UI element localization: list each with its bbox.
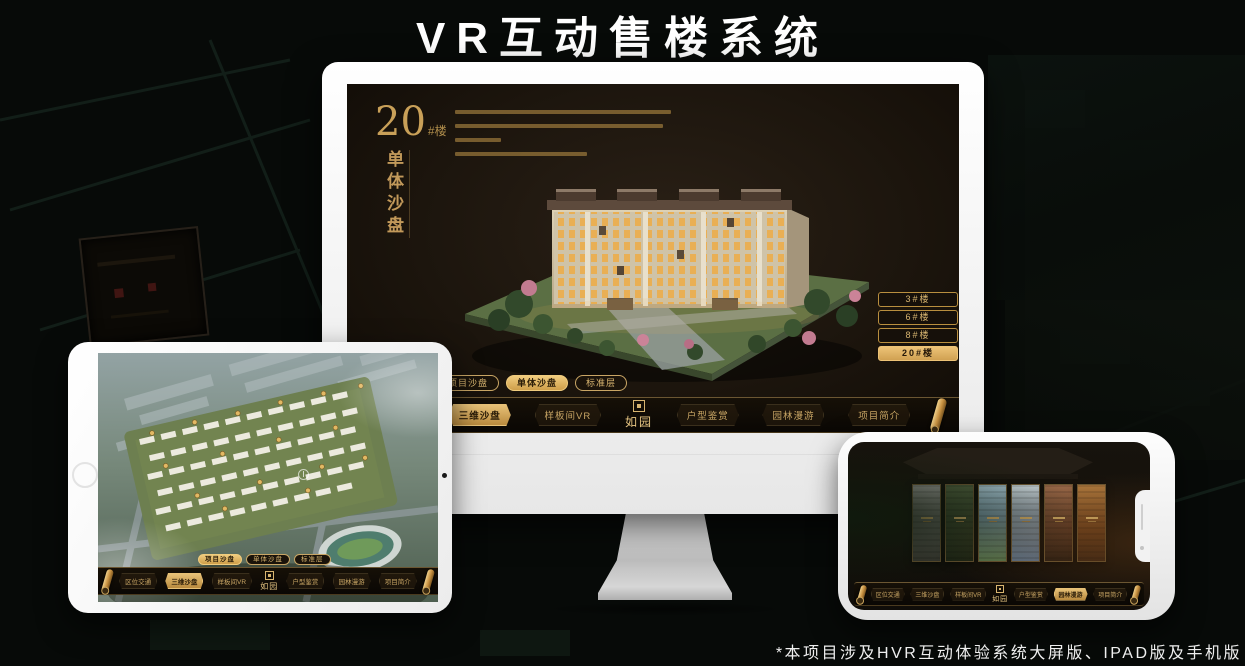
scroll-icon[interactable]: [101, 569, 114, 594]
floor-button-6[interactable]: 6#楼: [878, 310, 958, 325]
poster: VR互动售楼系统 20#楼 单体沙盘: [0, 0, 1245, 666]
menu-item-showroom-vr[interactable]: 样板间VR: [212, 573, 253, 589]
menu-item-floorplan[interactable]: 户型鉴赏: [677, 404, 739, 426]
menu-item-showroom-vr[interactable]: 样板间VR: [535, 404, 602, 426]
background-photo: [988, 55, 1245, 300]
camera-icon: [1140, 546, 1144, 550]
tablet-camera-ring: [72, 462, 98, 488]
scroll-icon[interactable]: [1131, 585, 1142, 604]
phone-navbar: 区位交通 三维沙盘 样板间VR 如园 户型鉴赏 园林漫游 项目简介: [854, 582, 1144, 606]
tablet-view-tabs: 项目沙盘 单体沙盘 标准层: [198, 554, 331, 565]
tablet-screen: 项目沙盘 单体沙盘 标准层 区位交通 三维沙盘 样板间VR 如园 户型鉴赏 园林…: [98, 353, 438, 602]
tablet-camera-dot-icon: [442, 473, 447, 478]
speaker-icon: [1141, 504, 1143, 530]
floor-button-20[interactable]: 20#楼: [878, 346, 958, 361]
tab-standard-floor[interactable]: 标准层: [575, 375, 627, 391]
vertical-divider: [409, 150, 410, 238]
floor-button-8[interactable]: 8#楼: [878, 328, 958, 343]
page-title: VR互动售楼系统: [0, 2, 1245, 66]
scroll-icon[interactable]: [929, 397, 947, 432]
building-3d-model[interactable]: [457, 156, 877, 386]
monitor-shadow: [540, 602, 790, 616]
menu-item-project-intro[interactable]: 项目简介: [379, 573, 417, 589]
menu-item-project-intro[interactable]: 项目简介: [1093, 588, 1127, 601]
tablet-tab-project-sandbox[interactable]: 项目沙盘: [198, 554, 242, 565]
phone-screen: 区位交通 三维沙盘 样板间VR 如园 户型鉴赏 园林漫游 项目简介: [848, 442, 1150, 610]
scroll-icon[interactable]: [422, 569, 435, 594]
floor-button-3[interactable]: 3#楼: [878, 292, 958, 307]
brand-logo-text: 如园: [260, 581, 278, 592]
menu-item-garden-tour[interactable]: 园林漫游: [1054, 588, 1088, 601]
menu-item-floorplan[interactable]: 户型鉴赏: [286, 573, 324, 589]
view-tabs: 项目沙盘 单体沙盘 标准层: [437, 375, 627, 391]
menu-item-3d-sandbox[interactable]: 三维沙盘: [449, 404, 511, 426]
floor-selector: 3#楼 6#楼 8#楼 20#楼: [878, 292, 958, 364]
brand-logo-text: 如园: [625, 413, 653, 430]
menu-item-location[interactable]: 区位交通: [871, 588, 905, 601]
brand-logo-text: 如园: [992, 594, 1008, 604]
brand-logo: 如园: [625, 400, 653, 430]
scroll-icon[interactable]: [857, 585, 868, 604]
compass-icon: [298, 469, 309, 480]
tablet-device: 项目沙盘 单体沙盘 标准层 区位交通 三维沙盘 样板间VR 如园 户型鉴赏 园林…: [68, 342, 452, 613]
tablet-navbar: 区位交通 三维沙盘 样板间VR 如园 户型鉴赏 园林漫游 项目简介: [98, 567, 438, 595]
block-suffix: #楼: [428, 124, 447, 138]
menu-item-location[interactable]: 区位交通: [119, 573, 157, 589]
menu-item-3d-sandbox[interactable]: 三维沙盘: [165, 573, 203, 589]
tablet-tab-standard-floor[interactable]: 标准层: [294, 554, 331, 565]
menu-item-floorplan[interactable]: 户型鉴赏: [1014, 588, 1048, 601]
seal-icon: [633, 400, 645, 412]
block-title: 20#楼: [375, 102, 447, 142]
seal-icon: [265, 571, 274, 580]
footnote: *本项目涉及HVR互动体验系统大屏版、IPAD版及手机版: [776, 639, 1242, 663]
menu-item-showroom-vr[interactable]: 样板间VR: [950, 588, 986, 601]
brand-logo: 如园: [992, 585, 1008, 604]
phone-notch: [1135, 490, 1150, 562]
background-plaque: [79, 226, 210, 348]
brand-logo: 如园: [260, 571, 278, 592]
menu-item-3d-sandbox[interactable]: 三维沙盘: [910, 588, 944, 601]
tablet-tab-single-sandbox[interactable]: 单体沙盘: [246, 554, 290, 565]
phone-device: 区位交通 三维沙盘 样板间VR 如园 户型鉴赏 园林漫游 项目简介: [838, 432, 1175, 620]
menu-item-garden-tour[interactable]: 园林漫游: [762, 404, 824, 426]
seal-icon: [996, 585, 1004, 593]
tab-single-sandbox[interactable]: 单体沙盘: [506, 375, 568, 391]
menu-item-project-intro[interactable]: 项目简介: [848, 404, 910, 426]
menu-item-garden-tour[interactable]: 园林漫游: [333, 573, 371, 589]
block-subtitle-vertical: 单体沙盘: [381, 150, 406, 238]
block-number: 20: [375, 99, 426, 145]
